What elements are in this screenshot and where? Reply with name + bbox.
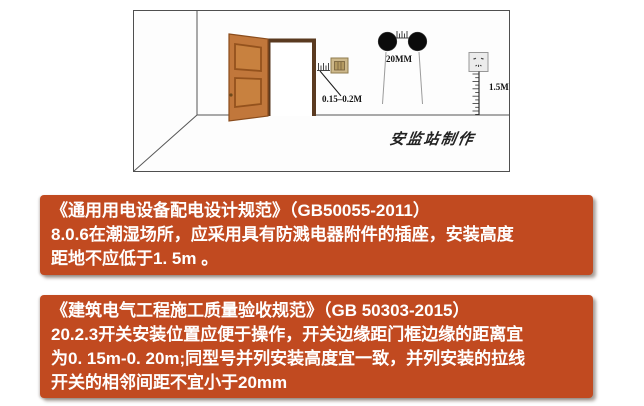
gap-ruler-icon: [317, 63, 330, 71]
banner-title: 《通用用电设备配电设计规范》（GB50055-2011）: [51, 199, 582, 223]
banner-line: 8.0.6在潮湿场所，应采用具有防溅电器附件的插座，安装高度: [51, 223, 582, 247]
room-diagram: 0.15–0.2M 20MM 1.5M 安监站制作: [133, 10, 510, 172]
regulation-banner-switch: 《建筑电气工程施工质量验收规范》（GB 50303-2015） 20.2.3开关…: [40, 295, 593, 398]
pull-switch-spacing-label: 20MM: [386, 54, 412, 64]
door-handle-icon: [229, 93, 232, 96]
height-ruler-icon: [473, 72, 480, 116]
wall-switch-icon: [331, 58, 348, 73]
banner-line: 距地不应低于1. 5m 。: [51, 247, 582, 271]
banner-line: 开关的相邻间距不宜小于20mm: [51, 371, 582, 395]
door-icon: [229, 34, 314, 121]
socket-height-label: 1.5M: [489, 82, 509, 92]
banner-line: 为0. 15m-0. 20m;同型号并列安装高度宜一致，并列安装的拉线: [51, 347, 582, 371]
banner-title: 《建筑电气工程施工质量验收规范》（GB 50303-2015）: [51, 299, 582, 323]
spacing-ruler-icon: [396, 31, 409, 38]
pull-cord-switch-icon: [378, 31, 427, 104]
infographic-canvas: 0.15–0.2M 20MM 1.5M 安监站制作 《通用用电设备配电设计规范》…: [0, 0, 644, 406]
maker-watermark: 安监站制作: [388, 128, 477, 149]
regulation-banner-socket: 《通用用电设备配电设计规范》（GB50055-2011） 8.0.6在潮湿场所，…: [40, 195, 593, 275]
banner-line: 20.2.3开关安装位置应便于操作，开关边缘距门框边缘的距离宜: [51, 323, 582, 347]
socket-icon: [469, 53, 488, 72]
pull-cord-line: [419, 52, 423, 104]
door-distance-label: 0.15–0.2M: [322, 94, 362, 104]
door-distance-pointer-line: [320, 71, 341, 96]
